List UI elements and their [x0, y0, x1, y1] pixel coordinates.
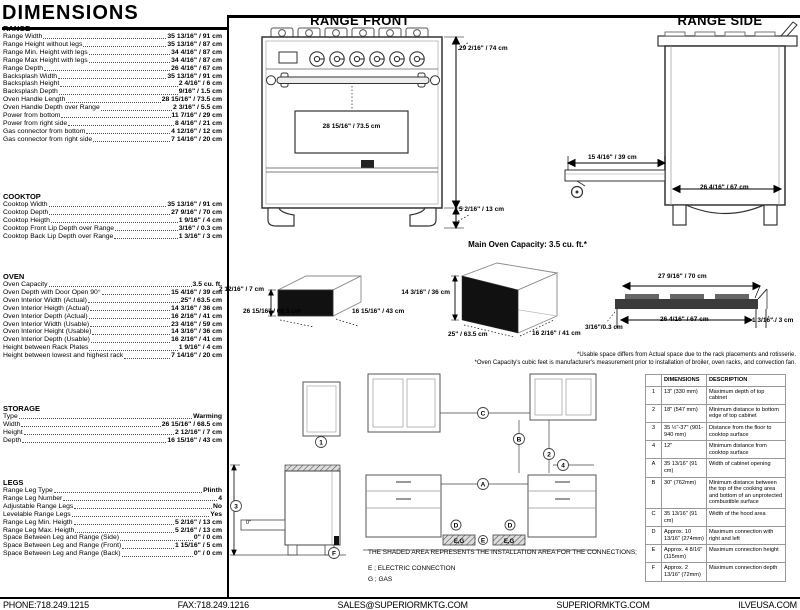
leader-dots [93, 141, 170, 142]
leader-dots [58, 78, 166, 79]
spec-label: Oven Depth with Door Open 90° [3, 289, 101, 297]
table-header-cell: DESCRIPTION [707, 375, 786, 387]
spec-value: 4 [218, 495, 222, 503]
table-row: 113" (330 mm)Maximum depth of top cabine… [646, 386, 786, 404]
spec-value: 23 4/16" / 59 cm [171, 321, 222, 329]
spec-row: Range Width35 13/16" / 91 cm [3, 33, 222, 41]
storage-drawer-drawing [266, 272, 374, 330]
table-cell: 12" [662, 441, 707, 459]
table-cell: Minimum distance between the top of the … [707, 477, 786, 508]
spec-value: Yes [210, 511, 222, 519]
table-head: DIMENSIONSDESCRIPTION [646, 375, 786, 387]
leader-dots [124, 358, 170, 359]
leader-dots [49, 214, 170, 215]
back-lip-label: 1 3/16" / 3 cm [752, 317, 793, 324]
spec-row: Oven Interior Height (Usable)14 3/16" / … [3, 328, 222, 336]
spec-value: Plinth [203, 487, 222, 495]
table-cell: 30" (762mm) [662, 477, 707, 508]
svg-text:D: D [508, 522, 513, 529]
spec-row: Space Between Leg and Range (Back)0" / 0… [3, 550, 222, 558]
section-heading: COOKTOP [3, 192, 222, 201]
spec-value: 26 15/16" / 68.5 cm [162, 421, 222, 429]
leader-dots [74, 508, 212, 509]
spec-label: Oven Capacity [3, 281, 48, 289]
cooktop-bar-icon [615, 299, 758, 309]
spec-row: Backsplash Width35 13/16" / 91 cm [3, 73, 222, 81]
footer-brand: ILVEUSA.COM [738, 600, 797, 610]
spec-value: 34 4/16" / 87 cm [171, 57, 222, 65]
table-row: EApprox. 4 8/16" (115mm)Maximum connecti… [646, 545, 786, 563]
table-row: A35 13/16" (91 cm)Width of cabinet openi… [646, 459, 786, 477]
leader-dots [92, 334, 170, 335]
spec-value: 5 2/16" / 13 cm [175, 527, 222, 535]
spec-row: Range Max Height with legs34 4/16" / 87 … [3, 57, 222, 65]
table-cell: 4 [646, 441, 662, 459]
spec-row: Oven Capacity3.5 cu. ft. [3, 281, 222, 289]
leader-dots [51, 222, 178, 223]
spec-label: Oven Interior Depth (Usable) [3, 336, 90, 344]
table-body: 113" (330 mm)Maximum depth of top cabine… [646, 386, 786, 581]
spec-value: 28 15/16" / 73.5 cm [162, 96, 222, 104]
spec-sheet: DIMENSIONS RANGE Range Width35 13/16" / … [0, 0, 800, 610]
table-cell: Approx. 10 13/16" (274mm) [662, 527, 707, 545]
cooktop-profile-drawing [603, 272, 800, 340]
spec-value: 16 15/16" / 43 cm [167, 437, 222, 445]
spec-value: 2 12/16" / 7 cm [175, 429, 222, 437]
spec-value: 11 7/16" / 29 cm [172, 112, 222, 120]
spec-label: Backsplash Height [3, 80, 59, 88]
spec-value: 5 2/16" / 13 cm [175, 519, 222, 527]
spec-label: Range Leg Type [3, 487, 53, 495]
footnote-capacity: *Oven Capacity's cubic feet is manufactu… [475, 360, 796, 366]
spec-label: Space Between Leg and Range (Side) [3, 534, 119, 542]
spec-value: 7 14/16" / 20 cm [171, 352, 222, 360]
table-cell: 35 13/16" (91 cm) [662, 508, 707, 526]
table-cell: Minimum distance from cooktop surface [707, 441, 786, 459]
oven-width-label: 25" / 63.5 cm [448, 331, 488, 338]
table-header-row: DIMENSIONSDESCRIPTION [646, 375, 786, 387]
spec-label: Range Leg Min. Heigth [3, 519, 73, 527]
spec-label: Height between Rack Plates [3, 344, 88, 352]
spec-label: Range Height without legs [3, 41, 82, 49]
spec-row: Range Min. Height with legs34 4/16" / 87… [3, 49, 222, 57]
spec-label: Oven Interior Heigth (Actual) [3, 305, 89, 313]
cooktop-width-label: 27 9/16" / 70 cm [658, 273, 707, 280]
spec-value: Warming [193, 413, 222, 421]
spec-label: Adjustable Range Legs [3, 503, 73, 511]
table-cell: 35 13/16" (91 cm) [662, 459, 707, 477]
spec-value: 25" / 63.5 cm [181, 297, 222, 305]
table-cell: Maximum connection depth [707, 563, 786, 581]
leader-dots [49, 286, 192, 287]
svg-text:3: 3 [234, 503, 238, 510]
leader-dots [83, 46, 166, 47]
table-cell: 1 [646, 386, 662, 404]
spec-label: Space Between Leg and Range (Front) [3, 542, 121, 550]
spec-row: Cooktop Heigth1 9/16" / 4 cm [3, 217, 222, 225]
leader-dots [22, 442, 166, 443]
section-cooktop: COOKTOP Cooktop Width35 13/16" / 91 cmCo… [3, 192, 222, 241]
open-door-icon [565, 170, 665, 198]
table-cell: C [646, 508, 662, 526]
leader-dots [75, 532, 174, 533]
leader-dots [120, 540, 193, 541]
display-panel-icon [279, 52, 297, 63]
spec-label: Range Leg Max. Heigth [3, 527, 74, 535]
spec-row: Backsplash Height2 4/16" / 6 cm [3, 80, 222, 88]
leader-dots [68, 125, 174, 126]
leader-dots [60, 86, 177, 87]
table-cell: A [646, 459, 662, 477]
spec-label: Range Max Height with legs [3, 57, 88, 65]
spec-row: Oven Handle Depth over Range2 3/16" / 5.… [3, 104, 222, 112]
svg-text:A: A [481, 481, 486, 488]
leader-dots [102, 294, 171, 295]
spec-rows: Range Leg TypePlinthRange Leg Number4Adj… [3, 487, 222, 558]
table-row: B30" (762mm)Minimum distance between the… [646, 477, 786, 508]
table-cell: 2 [646, 404, 662, 422]
table-row: DApprox. 10 13/16" (274mm)Maximum connec… [646, 527, 786, 545]
range-legs-icon [268, 208, 436, 226]
zero-gap-label: 0" [246, 520, 251, 526]
spec-label: Oven Handle Length [3, 96, 65, 104]
table-cell: Minimum distance to bottom edge of top c… [707, 404, 786, 422]
spec-label: Width [3, 421, 20, 429]
svg-text:E,G: E,G [454, 539, 465, 545]
leader-dots [122, 556, 193, 557]
spec-label: Gas connector from right side [3, 136, 92, 144]
spec-row: Levelable Range LegsYes [3, 511, 222, 519]
leader-dots [89, 350, 177, 351]
spec-label: Oven Handle Depth over Range [3, 104, 100, 112]
spec-row: Range Leg Max. Heigth5 2/16" / 13 cm [3, 527, 222, 535]
spec-value: 8 4/16" / 21 cm [175, 120, 222, 128]
spec-row: Cooktop Back Lip Depth over Range1 3/16"… [3, 233, 222, 241]
svg-text:4: 4 [561, 462, 565, 469]
svg-text:C: C [481, 410, 486, 417]
spec-row: Height between Rack Plates1 9/16" / 4 cm [3, 344, 222, 352]
spec-value: No [213, 503, 222, 511]
table-cell: Maximum depth of top cabinet [707, 386, 786, 404]
spec-row: Oven Interior Width (Actual)25" / 63.5 c… [3, 297, 222, 305]
spec-value: 9/16" / 1.5 cm [179, 88, 222, 96]
leader-dots [61, 117, 170, 118]
spec-value: 1 3/16" / 3 cm [179, 233, 222, 241]
height-dimension-arrow [444, 37, 469, 228]
spec-row: Width26 15/16" / 68.5 cm [3, 421, 222, 429]
leader-dots [44, 70, 170, 71]
range-legs-icon [673, 205, 777, 225]
section-oven: OVEN Oven Capacity3.5 cu. ft.Oven Depth … [3, 272, 222, 360]
spec-row: Height between lowest and highest rack7 … [3, 352, 222, 360]
spec-value: 16 2/16" / 41 cm [171, 336, 222, 344]
spec-label: Height between lowest and highest rack [3, 352, 123, 360]
spec-label: Power from right side [3, 120, 67, 128]
svg-text:D: D [454, 522, 459, 529]
table-cell: Width of cabinet opening [707, 459, 786, 477]
svg-text:E,G: E,G [504, 539, 515, 545]
leader-dots [88, 302, 180, 303]
leader-dots [101, 110, 172, 111]
spec-value: 15 4/16" / 39 cm [171, 289, 222, 297]
spec-label: Range Depth [3, 65, 43, 73]
spec-label: Backsplash Depth [3, 88, 58, 96]
spec-value: 2 4/16" / 6 cm [179, 80, 222, 88]
spec-value: 34 4/16" / 87 cm [171, 49, 222, 57]
drawer-width-label: 26 15/16" / 68.5 cm [243, 308, 301, 315]
dimensions-table: DIMENSIONSDESCRIPTION 113" (330 mm)Maxim… [645, 374, 786, 582]
spec-value: 35 13/16" / 91 cm [167, 73, 222, 81]
section-heading: RANGE [3, 24, 222, 33]
leader-dots [90, 310, 170, 311]
spec-row: Range Leg TypePlinth [3, 487, 222, 495]
footnote-usable-space: *Usable space differs from Actual space … [577, 352, 796, 358]
leader-dots [74, 524, 174, 525]
drawer-height-label: 2 12/16" / 7 cm [216, 286, 264, 293]
spec-value: 27 9/16" / 70 cm [171, 209, 222, 217]
table-row: C35 13/16" (91 cm)Width of the hood area [646, 508, 786, 526]
range-side-drawing [565, 16, 795, 230]
footer: PHONE:718.249.1215 FAX:718.249.1216 SALE… [0, 597, 800, 610]
spec-value: 1 9/16" / 4 cm [179, 344, 222, 352]
table-row: 335 ½"-37" (901-940 mm)Distance from the… [646, 422, 786, 440]
spec-row: Gas connector from right side7 14/16" / … [3, 136, 222, 144]
oven-capacity-note: Main Oven Capacity: 3.5 cu. ft.* [430, 240, 625, 249]
spec-row: Space Between Leg and Range (Side)0" / 0… [3, 534, 222, 542]
spec-label: Power from bottom [3, 112, 60, 120]
spec-label: Cooktop Back Lip Depth over Range [3, 233, 113, 241]
spec-value: 14 3/16" / 36 cm [171, 328, 222, 336]
footer-email: SALES@SUPERIORMKTG.COM [338, 600, 468, 610]
table-cell: Maximum connection height [707, 545, 786, 563]
leader-dots [19, 418, 192, 419]
table-cell: Approx. 2 13/16" (72mm) [662, 563, 707, 581]
section-heading: OVEN [3, 272, 222, 281]
spec-row: Oven Depth with Door Open 90°15 4/16" / … [3, 289, 222, 297]
footer-fax: FAX:718.249.1216 [178, 600, 249, 610]
oven-window-icon [295, 111, 408, 153]
spec-rows: Oven Capacity3.5 cu. ft.Oven Depth with … [3, 281, 222, 360]
section-legs: LEGS Range Leg TypePlinthRange Leg Numbe… [3, 478, 222, 558]
drawer-depth-label: 16 15/16" / 43 cm [352, 308, 404, 315]
spec-rows: Cooktop Width35 13/16" / 91 cmCooktop De… [3, 201, 222, 241]
spec-row: Cooktop Front Lip Depth over Range3/16" … [3, 225, 222, 233]
table-header-cell: DIMENSIONS [662, 375, 707, 387]
table-cell: D [646, 527, 662, 545]
leader-dots [114, 238, 177, 239]
footer-website: SUPERIORMKTG.COM [556, 600, 649, 610]
spec-value: 3/16" / 0.3 cm [179, 225, 222, 233]
section-storage: STORAGE TypeWarmingWidth26 15/16" / 68.5… [3, 404, 222, 445]
electric-connection-note: E ; ELECTRIC CONNECTION [368, 565, 455, 572]
spec-label: Type [3, 413, 18, 421]
spec-label: Oven Interior Depth (Actual) [3, 313, 88, 321]
leader-dots [21, 426, 160, 427]
spec-row: TypeWarming [3, 413, 222, 421]
table-cell: Width of the hood area [707, 508, 786, 526]
spec-row: Range Leg Min. Heigth5 2/16" / 13 cm [3, 519, 222, 527]
leader-dots [59, 94, 178, 95]
spec-label: Oven Interior Height (Usable) [3, 328, 91, 336]
spec-row: Cooktop Depth27 9/16" / 70 cm [3, 209, 222, 217]
spec-label: Cooktop Heigth [3, 217, 50, 225]
section-range: RANGE Range Width35 13/16" / 91 cmRange … [3, 24, 222, 144]
spec-value: 16 2/16" / 41 cm [171, 313, 222, 321]
spec-label: Cooktop Depth [3, 209, 48, 217]
spec-value: 0" / 0 cm [194, 550, 222, 558]
leader-dots [49, 206, 167, 207]
table-row: 412"Minimum distance from cooktop surfac… [646, 441, 786, 459]
svg-text:1: 1 [319, 439, 323, 446]
spec-rows: TypeWarmingWidth26 15/16" / 68.5 cmHeigh… [3, 413, 222, 445]
spec-label: Levelable Range Legs [3, 511, 71, 519]
spec-row: Range Depth26 4/16" / 67 cm [3, 65, 222, 73]
leader-dots [54, 492, 202, 493]
range-front-height-label: 29 2/16" / 74 cm [459, 45, 508, 52]
table-row: FApprox. 2 13/16" (72mm)Maximum connecti… [646, 563, 786, 581]
brand-badge-icon [361, 160, 374, 168]
table-cell: B [646, 477, 662, 508]
spec-row: Range Height without legs35 13/16" / 87 … [3, 41, 222, 49]
table-header-cell [646, 375, 662, 387]
spec-label: Range Min. Height with legs [3, 49, 88, 57]
table-cell: 3 [646, 422, 662, 440]
table-cell: Maximum connection with right and left [707, 527, 786, 545]
spec-label: Depth [3, 437, 21, 445]
spec-label: Oven Interior Width (Usable) [3, 321, 89, 329]
spec-row: Cooktop Width35 13/16" / 91 cm [3, 201, 222, 209]
spec-rows: Range Width35 13/16" / 91 cmRange Height… [3, 33, 222, 144]
spec-row: Oven Interior Heigth (Actual)14 3/16" / … [3, 305, 222, 313]
svg-text:E: E [481, 537, 486, 544]
spec-label: Cooktop Width [3, 201, 48, 209]
table-cell: F [646, 563, 662, 581]
oven-height-label: 14 3/16" / 36 cm [394, 289, 450, 296]
spec-value: 14 3/16" / 36 cm [171, 305, 222, 313]
leader-dots [89, 318, 171, 319]
spec-row: Gas connector from bottom4 12/16" / 12 c… [3, 128, 222, 136]
leader-dots [63, 500, 217, 501]
table-cell: 18" (547 mm) [662, 404, 707, 422]
spec-value: 1 9/16" / 4 cm [179, 217, 222, 225]
leader-dots [66, 102, 160, 103]
leader-dots [72, 516, 210, 517]
spec-value: 2 3/16" / 5.5 cm [173, 104, 222, 112]
leader-dots [91, 342, 170, 343]
table-cell: 13" (330 mm) [662, 386, 707, 404]
leader-dots [89, 62, 171, 63]
spec-value: 7 14/16" / 20 cm [171, 136, 222, 144]
spec-row: Space Between Leg and Range (Front)1 15/… [3, 542, 222, 550]
spec-label: Oven Interior Width (Actual) [3, 297, 87, 305]
section-heading: STORAGE [3, 404, 222, 413]
gas-connection-note: G ; GAS [368, 576, 392, 583]
spec-row: Power from bottom11 7/16" / 29 cm [3, 112, 222, 120]
leader-dots [122, 548, 174, 549]
svg-text:B: B [517, 436, 522, 443]
table-cell: Approx. 4 8/16" (115mm) [662, 545, 707, 563]
spec-label: Range Width [3, 33, 42, 41]
leader-dots [115, 230, 178, 231]
leader-dots [90, 326, 170, 327]
spec-label: Backsplash Width [3, 73, 57, 81]
spec-row: Oven Interior Depth (Usable)16 2/16" / 4… [3, 336, 222, 344]
installation-diagram: 1 3 F C B 2 4 A D D E E,G E,G [228, 370, 598, 562]
spec-row: Oven Interior Width (Usable)23 4/16" / 5… [3, 321, 222, 329]
leader-dots [43, 38, 166, 39]
spec-row: Backsplash Depth9/16" / 1.5 cm [3, 88, 222, 96]
spec-row: Adjustable Range LegsNo [3, 503, 222, 511]
spec-value: 4 12/16" / 12 cm [171, 128, 222, 136]
svg-text:2: 2 [547, 451, 551, 458]
spec-value: 35 13/16" / 91 cm [167, 33, 222, 41]
spec-row: Depth16 15/16" / 43 cm [3, 437, 222, 445]
spec-row: Height2 12/16" / 7 cm [3, 429, 222, 437]
spec-value: 35 13/16" / 91 cm [167, 201, 222, 209]
section-heading: LEGS [3, 478, 222, 487]
table-row: 218" (547 mm)Minimum distance to bottom … [646, 404, 786, 422]
table-cell: 35 ½"-37" (901-940 mm) [662, 422, 707, 440]
spec-value: 35 13/16" / 87 cm [167, 41, 222, 49]
table-cell: E [646, 545, 662, 563]
oven-depth-label: 16 2/16" / 41 cm [532, 330, 581, 337]
spec-value: 26 4/16" / 67 cm [171, 65, 222, 73]
spec-label: Height [3, 429, 23, 437]
table-cell: Distance from the floor to cooktop surfa… [707, 422, 786, 440]
spec-value: 1 15/16" / 5 cm [175, 542, 222, 550]
spec-row: Power from right side8 4/16" / 21 cm [3, 120, 222, 128]
spec-label: Range Leg Number [3, 495, 62, 503]
spec-label: Space Between Leg and Range (Back) [3, 550, 121, 558]
svg-text:F: F [332, 550, 336, 557]
connection-note: THE SHADED AREA REPRESENTS THE INSTALLAT… [368, 549, 637, 556]
spec-row: Oven Handle Length28 15/16" / 73.5 cm [3, 96, 222, 104]
spec-value: 0" / 0 cm [194, 534, 222, 542]
leg-height-label: 5 2/16" / 13 cm [459, 206, 504, 213]
leader-dots [24, 434, 174, 435]
spec-row: Oven Interior Depth (Actual)16 2/16" / 4… [3, 313, 222, 321]
spec-label: Gas connector from bottom [3, 128, 85, 136]
footer-phone: PHONE:718.249.1215 [3, 600, 89, 610]
handle-length-label: 28 15/16" / 73.5 cm [293, 123, 410, 130]
oven-interior-drawing [428, 258, 580, 366]
front-lip-label: 3/16"/0.3 cm [585, 324, 623, 331]
spec-label: Cooktop Front Lip Depth over Range [3, 225, 114, 233]
cooktop-inner-label: 26 4/16" / 67 cm [660, 316, 709, 323]
leader-dots [86, 133, 170, 134]
spec-row: Range Leg Number4 [3, 495, 222, 503]
side-door-depth-label: 15 4/16" / 39 cm [588, 154, 637, 161]
leader-dots [89, 54, 171, 55]
side-depth-label: 26 4/16" / 67 cm [700, 184, 749, 191]
